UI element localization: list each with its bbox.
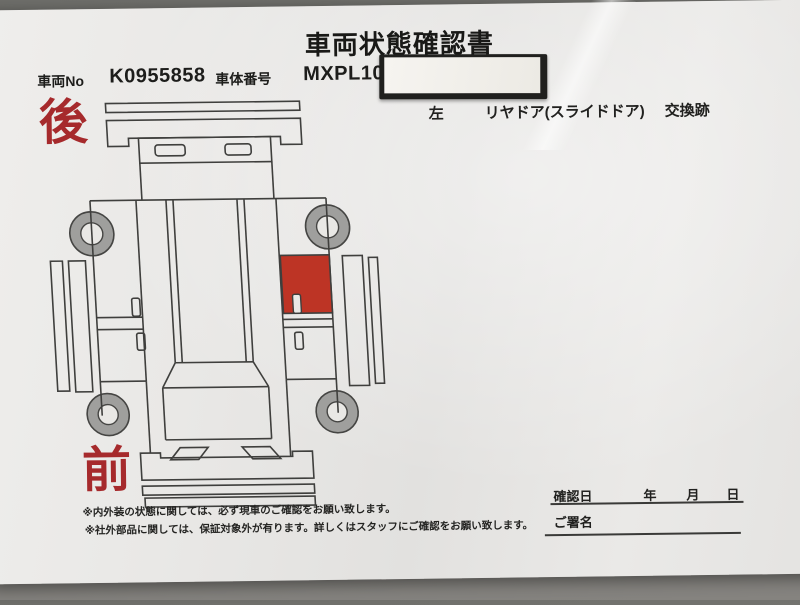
rear-bumper bbox=[105, 101, 301, 146]
front-wheels bbox=[86, 391, 359, 436]
damage-side: 左 bbox=[429, 102, 444, 123]
roof bbox=[166, 199, 253, 363]
tail-light-left bbox=[155, 145, 186, 156]
damage-part: リヤドア(スライドドア) bbox=[485, 100, 645, 123]
right-front-door-handle bbox=[295, 332, 304, 349]
signature-underline bbox=[545, 532, 741, 536]
highlighted-rear-slide-door bbox=[280, 255, 332, 314]
windshield-and-hood bbox=[161, 362, 271, 440]
rear-wheels bbox=[68, 205, 351, 256]
left-rear-door-handle bbox=[132, 298, 141, 316]
footnote-line-2: ※社外部品に関しては、保証対象外が有ります。詳しくはスタッフにご確認をお願い致し… bbox=[85, 517, 534, 537]
front-bumper bbox=[140, 451, 314, 480]
document-content: 車両状態確認書 車両No K0955858 車体番号 MXPL10- 左 リヤド… bbox=[0, 0, 800, 605]
rear-hatch bbox=[138, 137, 274, 201]
body-no-value: MXPL10- bbox=[303, 62, 391, 86]
signature-label: ご署名 bbox=[554, 512, 593, 531]
vehicle-diagram bbox=[21, 84, 422, 513]
front-end bbox=[140, 446, 315, 507]
damage-finding: 交換跡 bbox=[665, 99, 710, 121]
tail-light-right bbox=[225, 144, 252, 155]
photo-of-document: { "colors": { "highlight_red": "#bd3425"… bbox=[0, 0, 800, 600]
footnote-line-1: ※内外装の状態に関しては、必ず現車のご確認をお願い致します。 bbox=[82, 501, 395, 520]
rear-slide-door-handle bbox=[292, 294, 301, 313]
vehicle-no-value: K0955858 bbox=[109, 64, 206, 88]
